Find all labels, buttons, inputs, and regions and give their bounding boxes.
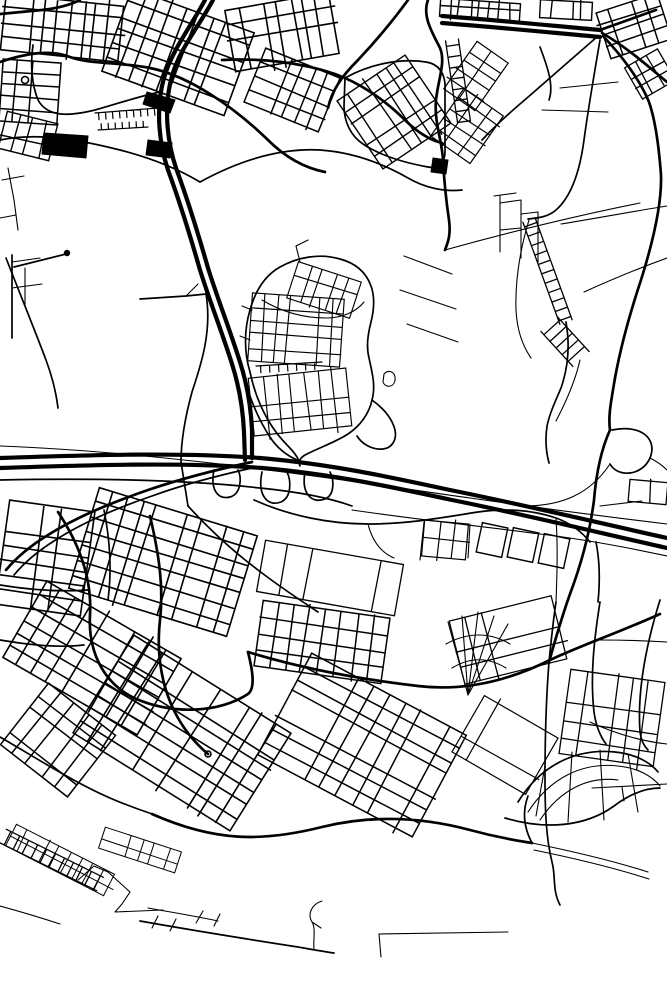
fan-radial-4 [628,754,638,812]
ml-lane-2 [2,176,24,180]
field-spur-2 [400,290,456,309]
tick-parallel-lane [148,908,218,921]
grid-biz-east [628,477,667,505]
dike-street-left [516,220,531,358]
city-arterial-ns [150,516,208,754]
grid-ne-1-streets [540,0,593,20]
se-double-road-b [534,850,649,879]
grid-biz-east-streets [628,477,667,505]
ne-diagonal-south [528,40,600,219]
grid-city-d-streets [69,632,295,837]
grid-biz-3 [538,534,570,569]
wedge-arc-1 [446,635,510,644]
fan-arc-2 [528,765,660,812]
field-spur-3 [407,324,458,342]
grid-city-d [69,632,295,837]
grid-suburb-d [252,597,390,686]
grid-village-3-streets [286,262,361,321]
dike-road-south [546,322,568,463]
center-s-road [426,0,449,250]
east-ramp-loop [610,429,652,474]
grid-nw-3 [222,0,345,78]
harbor-block-2 [42,133,88,158]
fan-connector [525,796,532,843]
east-blocks-lane [600,501,642,506]
dike-village-ladder [523,218,572,324]
grid-city-e [0,683,115,797]
grid-nw-3-streets [222,0,345,78]
village-pond [383,372,395,387]
polder-lane-1 [560,82,618,88]
street-map-canvas [0,0,667,1000]
below-strip-lane [0,906,60,924]
t-street-4 [500,228,521,230]
grid-village-3 [286,262,361,321]
polder-crossroad [140,294,206,299]
grid-village-2 [248,365,352,442]
grid-strip-blocks [99,827,182,873]
grid-nw-4-streets [0,59,61,125]
east-edge-road [603,36,661,430]
village-tail-loop [357,400,395,449]
field-spur-1 [404,256,452,274]
tick-2 [170,919,176,931]
roundabout-nw [22,77,29,84]
grid-biz-center [421,517,472,564]
grid-biz-3-streets [538,534,570,569]
fan-radial-2 [568,752,572,822]
grid-ladder-band-2-streets [428,86,508,169]
fan-district-ring [344,61,445,168]
grid-strip-blocks-streets [99,827,182,873]
grid-city-e-streets [0,683,115,797]
river-dike-road [0,737,152,814]
grid-suburb-d-streets [252,597,390,686]
grid-nw-4 [0,59,61,125]
corridor-service-road [0,479,352,506]
se-through-road [549,430,610,662]
grid-suburb-h [452,691,565,797]
ml-lane-3 [0,215,16,218]
boundary-spur [368,524,394,558]
north-arterial [222,60,442,143]
fan-radial-3 [600,750,604,820]
pier-comb-1 [95,108,158,120]
grid-suburb-h-streets [452,691,565,797]
t-street-5 [494,193,516,196]
city-diagonal-road [188,506,318,612]
grid-ladder-band-2 [428,86,508,169]
grid-biz-center-streets [421,517,472,564]
suburb-link-road [596,542,599,602]
city-south-boundary [200,150,462,191]
ramp-loop-2 [261,472,290,503]
suburb-ns-link [556,518,557,602]
ns-suburb-road [545,662,560,905]
right-angle-road [379,932,508,957]
ne-boundary-curve [540,47,551,100]
pier-comb-2 [98,121,148,130]
grid-village-1-streets [248,293,346,367]
map-poster [0,0,667,1000]
field-road-ne-2 [584,258,667,292]
grid-village-1 [248,293,346,367]
field-road-long [445,203,640,250]
polder-lane-2 [542,110,608,112]
hook-road [310,901,322,950]
harbor-block-3 [146,140,172,158]
tick-1 [152,916,158,928]
ne-motorway-b [442,23,600,37]
road-end-dot [65,251,70,256]
dike-village-ladder-wide [541,317,589,367]
grid-ne-1 [540,0,593,20]
village-ring-west [250,372,299,461]
farm-diagonal [6,258,58,408]
ne-diagonal-sw [482,36,598,140]
tick-diagonal-road [140,921,334,953]
grid-village-2-streets [248,365,352,442]
east-link-edge [650,458,667,470]
suburb-cross-east [590,722,667,744]
fan-arc-1 [518,751,658,802]
station-block [431,158,448,174]
south-road-east-lane [600,640,667,642]
